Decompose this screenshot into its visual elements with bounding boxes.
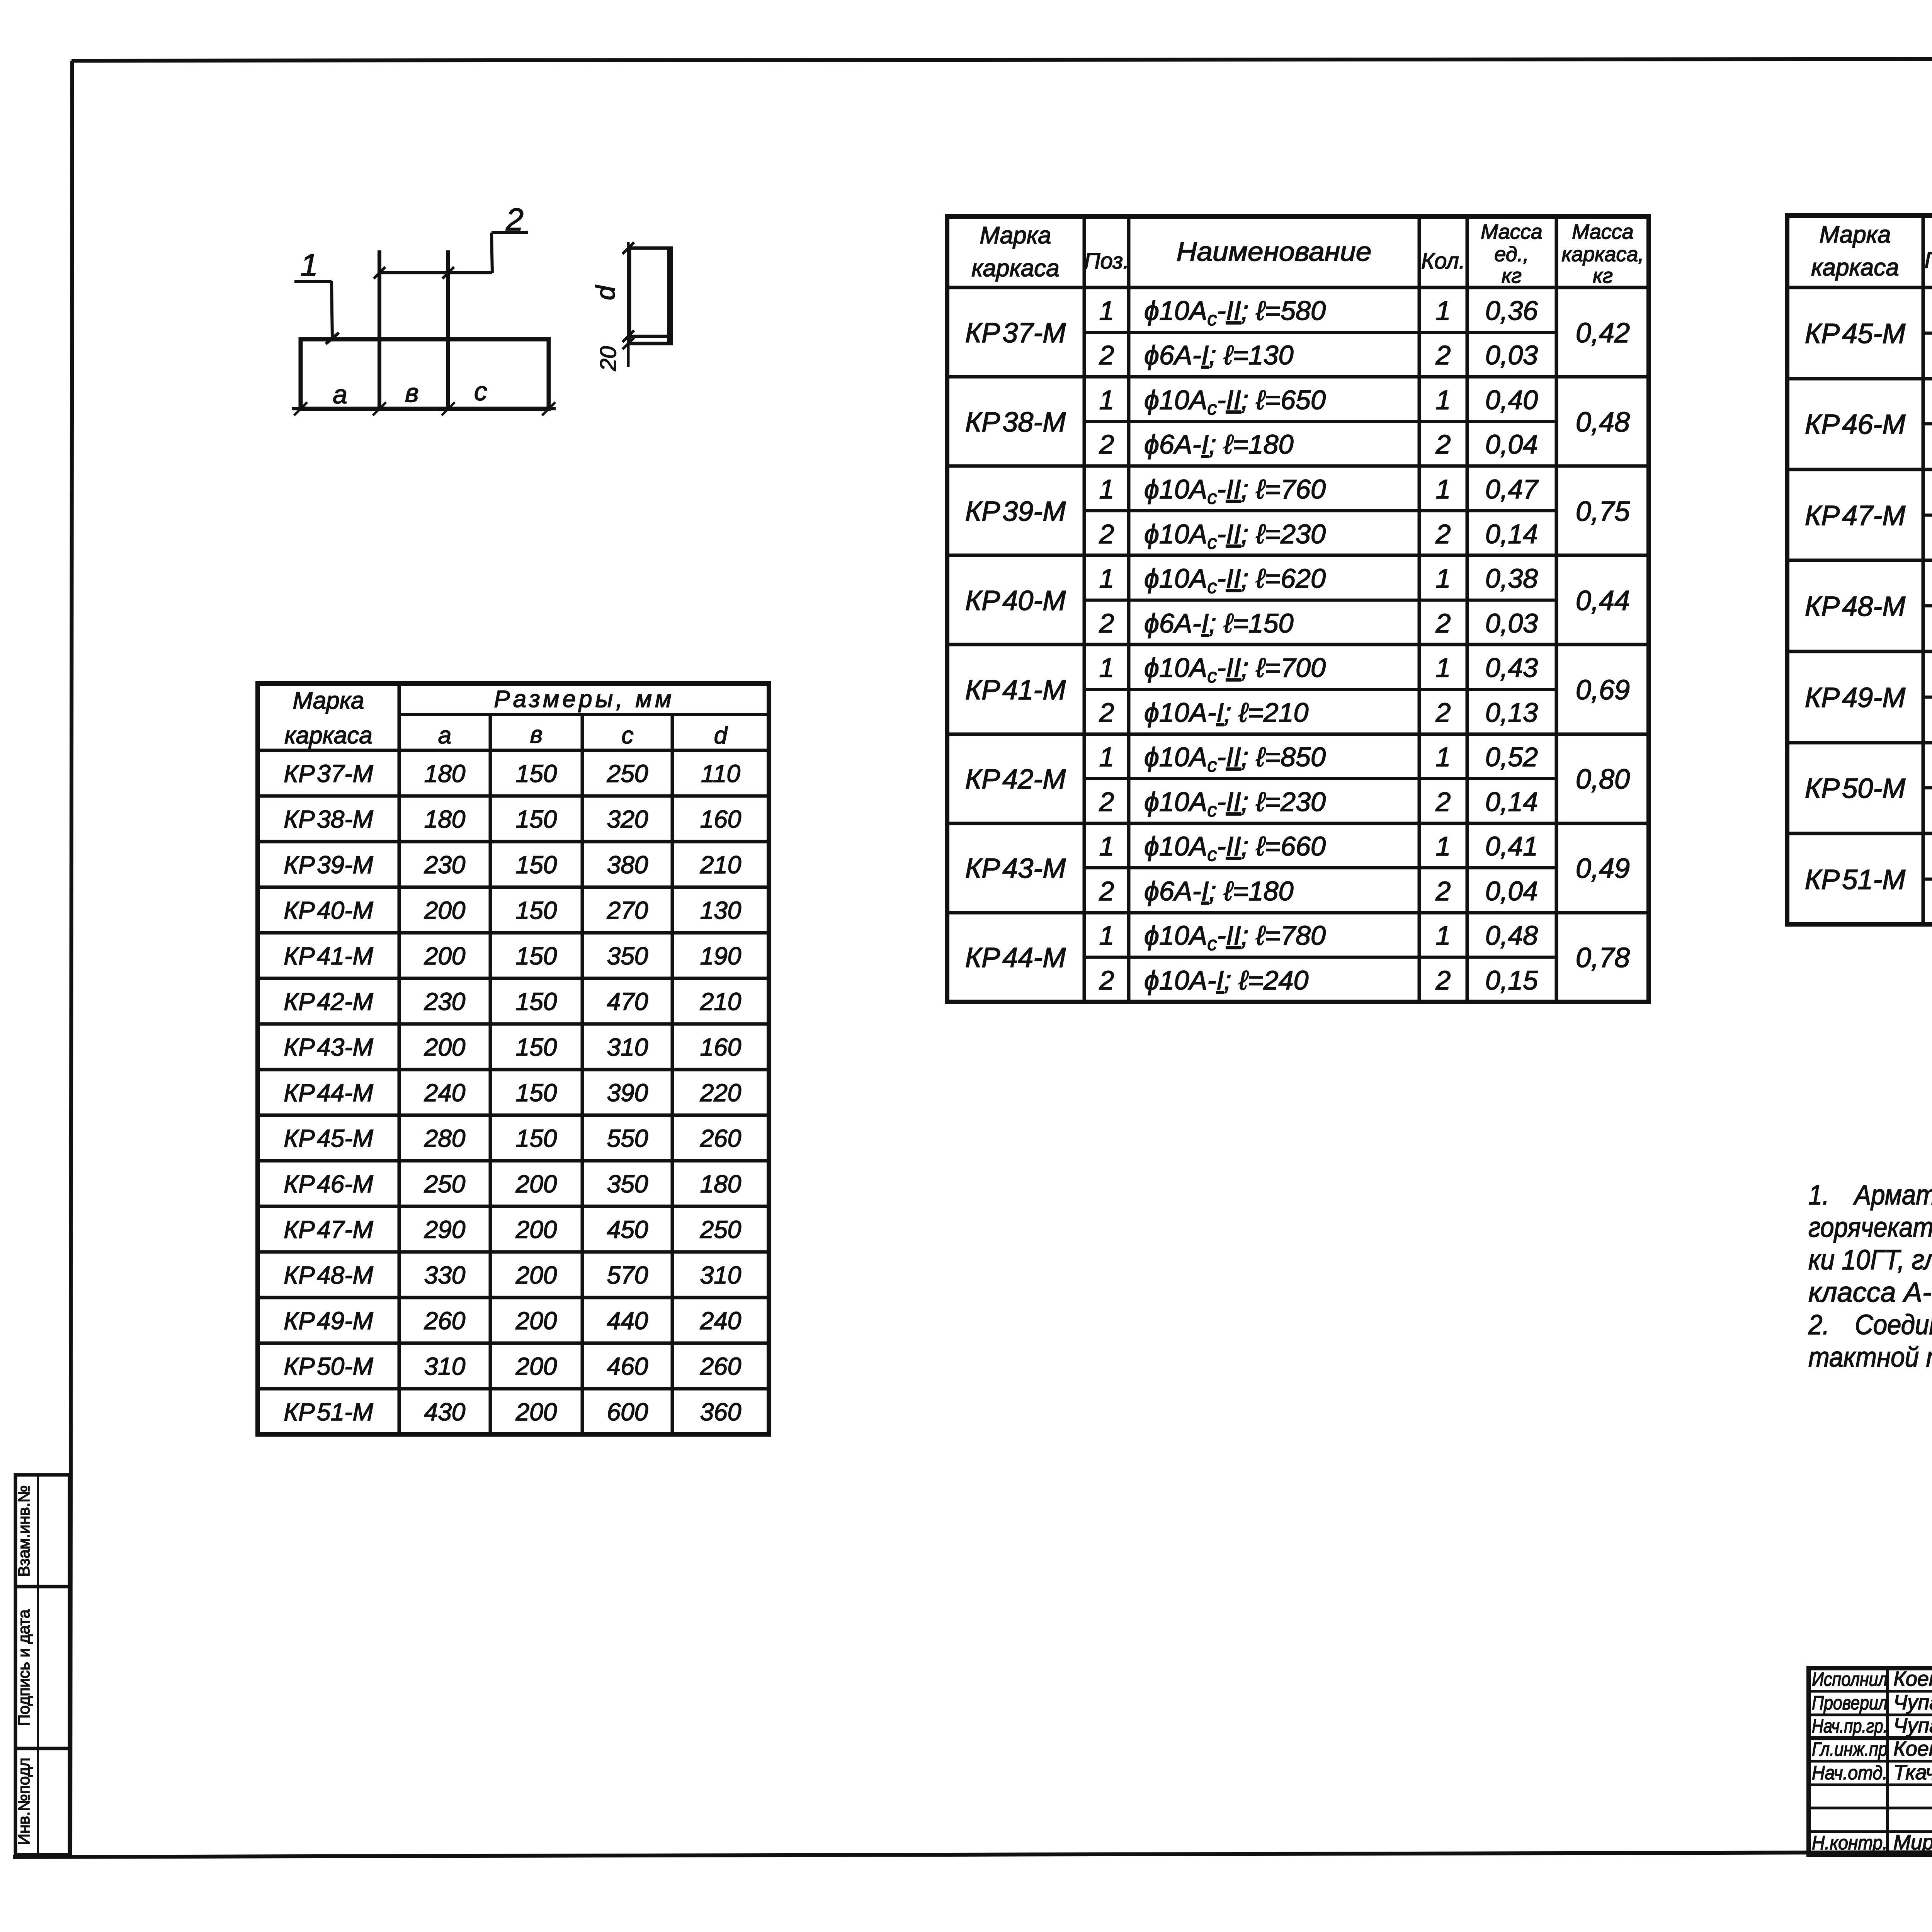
svg-text:110: 110 — [701, 760, 740, 787]
svg-text:Поз.: Поз. — [1084, 248, 1129, 274]
svg-text:310: 310 — [424, 1352, 466, 1380]
svg-text:КР 42-М: КР 42-М — [284, 988, 373, 1015]
svg-text:2: 2 — [1099, 608, 1114, 638]
svg-text:0,48: 0,48 — [1485, 920, 1538, 951]
svg-text:210: 210 — [700, 988, 742, 1015]
svg-text:0,04: 0,04 — [1485, 429, 1538, 459]
svg-text:380: 380 — [607, 851, 648, 879]
svg-text:430: 430 — [424, 1398, 466, 1426]
svg-text:1: 1 — [1099, 653, 1114, 683]
svg-text:горячекатаной низколегированн: горячекатаной низколегированной стали кл… — [1808, 1212, 1932, 1243]
svg-text:каркаса: каркаса — [284, 722, 372, 749]
svg-text:2. Соединение стержней произ: 2. Соединение стержней производится с по… — [1808, 1310, 1932, 1340]
svg-text:КР 48-М: КР 48-М — [284, 1261, 373, 1289]
svg-text:КР 51-М: КР 51-М — [284, 1398, 373, 1426]
svg-text:Марка: Марка — [1819, 221, 1891, 248]
svg-text:0,03: 0,03 — [1485, 608, 1538, 638]
svg-text:0,78: 0,78 — [1576, 942, 1630, 973]
svg-text:КР 38-М: КР 38-М — [284, 805, 373, 833]
svg-text:1: 1 — [1436, 563, 1451, 594]
svg-text:2: 2 — [1099, 340, 1114, 370]
svg-text:класса А-I марки Ст3сп.: класса А-I марки Ст3сп. — [1808, 1277, 1932, 1308]
svg-text:220: 220 — [700, 1079, 742, 1107]
svg-text:260: 260 — [700, 1352, 742, 1380]
svg-text:250: 250 — [700, 1216, 742, 1243]
svg-text:1: 1 — [1099, 296, 1114, 326]
svg-text:260: 260 — [700, 1124, 742, 1152]
svg-text:280: 280 — [424, 1124, 466, 1152]
svg-text:КР 39-М: КР 39-М — [284, 851, 373, 879]
svg-text:КР 50-М: КР 50-М — [1805, 773, 1906, 804]
svg-text:Коен Б.: Коен Б. — [1893, 1737, 1932, 1760]
svg-text:КР 39-М: КР 39-М — [965, 496, 1066, 527]
svg-text:200: 200 — [515, 1307, 557, 1335]
svg-text:330: 330 — [424, 1261, 466, 1289]
svg-text:240: 240 — [424, 1079, 466, 1107]
svg-text:460: 460 — [607, 1352, 648, 1380]
svg-text:КР 43-М: КР 43-М — [284, 1033, 373, 1061]
svg-text:200: 200 — [515, 1398, 557, 1426]
svg-text:КР 41-М: КР 41-М — [284, 942, 373, 970]
svg-text:160: 160 — [700, 805, 742, 833]
svg-text:ед.,: ед., — [1494, 243, 1529, 266]
svg-text:Н.контр.: Н.контр. — [1812, 1832, 1888, 1854]
svg-text:каркаса,: каркаса, — [1561, 243, 1644, 266]
svg-text:ϕ10Ас-II; ℓ=760: ϕ10Ас-II; ℓ=760 — [1144, 474, 1326, 508]
svg-text:КР 37-М: КР 37-М — [965, 318, 1066, 349]
svg-text:2: 2 — [1435, 697, 1451, 728]
svg-text:1: 1 — [1099, 831, 1114, 861]
svg-text:0,47: 0,47 — [1485, 474, 1539, 504]
svg-text:ϕ10Ас-II; ℓ=580: ϕ10Ас-II; ℓ=580 — [1144, 296, 1326, 330]
svg-text:150: 150 — [516, 1033, 557, 1061]
svg-text:2: 2 — [1099, 429, 1114, 459]
svg-text:0,48: 0,48 — [1576, 407, 1630, 438]
svg-text:150: 150 — [516, 942, 557, 970]
svg-text:200: 200 — [515, 1216, 557, 1243]
svg-text:200: 200 — [515, 1352, 557, 1380]
svg-text:ϕ10Ас-II; ℓ=620: ϕ10Ас-II; ℓ=620 — [1144, 563, 1326, 597]
svg-text:570: 570 — [607, 1261, 648, 1289]
svg-text:290: 290 — [424, 1216, 466, 1243]
svg-text:КР 45-М: КР 45-М — [1805, 318, 1906, 349]
svg-text:230: 230 — [424, 851, 466, 879]
svg-text:0,38: 0,38 — [1485, 563, 1538, 594]
svg-text:1: 1 — [1099, 563, 1114, 594]
svg-text:КР 45-М: КР 45-М — [284, 1124, 373, 1152]
svg-text:КР 40-М: КР 40-М — [284, 896, 373, 924]
svg-text:КР 47-М: КР 47-М — [284, 1216, 373, 1243]
svg-text:2: 2 — [1099, 697, 1114, 728]
svg-text:1: 1 — [1436, 385, 1451, 415]
svg-text:450: 450 — [607, 1216, 648, 1243]
svg-text:ϕ6А-I; ℓ=180: ϕ6А-I; ℓ=180 — [1144, 429, 1294, 459]
svg-text:d: d — [591, 285, 620, 300]
svg-text:600: 600 — [607, 1398, 648, 1426]
svg-text:250: 250 — [607, 760, 648, 787]
svg-text:440: 440 — [607, 1307, 648, 1335]
svg-text:2: 2 — [1099, 519, 1114, 549]
svg-text:Марка: Марка — [980, 222, 1051, 249]
svg-text:190: 190 — [700, 942, 742, 970]
svg-text:0,49: 0,49 — [1576, 853, 1630, 884]
svg-text:270: 270 — [607, 896, 648, 924]
svg-text:ϕ10Ас-II; ℓ=700: ϕ10Ас-II; ℓ=700 — [1144, 653, 1326, 687]
svg-text:1: 1 — [1436, 296, 1451, 326]
svg-text:КР 38-М: КР 38-М — [965, 407, 1066, 438]
svg-text:0,03: 0,03 — [1485, 340, 1538, 370]
svg-text:Нач.пр.гр.: Нач.пр.гр. — [1812, 1715, 1888, 1737]
svg-text:240: 240 — [700, 1307, 742, 1335]
svg-text:200: 200 — [424, 896, 466, 924]
svg-text:1. Арматура по ГОСТ 5781-82: 1. Арматура по ГОСТ 5781-82 периодическо… — [1808, 1180, 1932, 1211]
svg-text:0,15: 0,15 — [1485, 965, 1538, 995]
svg-text:1: 1 — [1436, 653, 1451, 683]
svg-text:в: в — [405, 378, 419, 408]
svg-text:2: 2 — [1099, 876, 1114, 906]
svg-text:кг: кг — [1502, 264, 1522, 287]
svg-text:Наименование: Наименование — [1177, 236, 1372, 267]
svg-text:0,41: 0,41 — [1485, 831, 1538, 861]
svg-text:ϕ10Ас-II; ℓ=650: ϕ10Ас-II; ℓ=650 — [1144, 385, 1326, 419]
svg-text:180: 180 — [424, 760, 466, 787]
svg-text:Марка: Марка — [293, 687, 364, 714]
svg-text:КР 49-М: КР 49-М — [1805, 682, 1906, 713]
svg-text:20: 20 — [596, 346, 621, 372]
svg-text:0,52: 0,52 — [1485, 742, 1538, 772]
svg-text:Исполнил: Исполнил — [1812, 1668, 1888, 1690]
svg-text:Поз.: Поз. — [1925, 248, 1932, 273]
svg-text:1: 1 — [1099, 920, 1114, 951]
svg-text:130: 130 — [700, 896, 742, 924]
svg-text:200: 200 — [424, 942, 466, 970]
svg-text:ϕ6А-I; ℓ=150: ϕ6А-I; ℓ=150 — [1144, 608, 1294, 638]
svg-text:250: 250 — [424, 1170, 466, 1198]
svg-text:ϕ10Ас-II; ℓ=780: ϕ10Ас-II; ℓ=780 — [1144, 920, 1326, 954]
svg-text:ϕ10Ас-II; ℓ=230: ϕ10Ас-II; ℓ=230 — [1144, 519, 1326, 553]
svg-text:550: 550 — [607, 1124, 648, 1152]
svg-text:150: 150 — [516, 805, 557, 833]
svg-text:Масса: Масса — [1572, 220, 1634, 243]
svg-text:0,13: 0,13 — [1485, 697, 1538, 728]
svg-text:Коен В.: Коен В. — [1893, 1667, 1932, 1690]
svg-text:390: 390 — [607, 1079, 648, 1107]
svg-text:2: 2 — [1099, 965, 1114, 995]
svg-text:350: 350 — [607, 1170, 648, 1198]
svg-text:360: 360 — [700, 1398, 742, 1426]
svg-text:ки 10ГТ, гладкая из углерод: ки 10ГТ, гладкая из углеродистой горячек… — [1808, 1245, 1932, 1276]
svg-text:1: 1 — [300, 248, 318, 283]
svg-text:0,14: 0,14 — [1485, 787, 1538, 817]
svg-text:1: 1 — [1436, 831, 1451, 861]
svg-text:180: 180 — [700, 1170, 742, 1198]
svg-text:470: 470 — [607, 988, 648, 1015]
svg-text:2: 2 — [1435, 429, 1451, 459]
svg-text:1: 1 — [1436, 920, 1451, 951]
svg-text:Взам.инв.№: Взам.инв.№ — [15, 1485, 33, 1577]
svg-text:1: 1 — [1099, 385, 1114, 415]
svg-text:150: 150 — [516, 988, 557, 1015]
svg-text:кг: кг — [1593, 264, 1613, 287]
svg-text:1: 1 — [1436, 474, 1451, 504]
svg-text:КР 43-М: КР 43-М — [965, 853, 1066, 884]
svg-text:0,80: 0,80 — [1576, 764, 1630, 795]
svg-text:Масса: Масса — [1481, 220, 1543, 243]
svg-text:КР 48-М: КР 48-М — [1805, 591, 1906, 622]
svg-text:0,04: 0,04 — [1485, 876, 1538, 906]
svg-text:КР 50-М: КР 50-М — [284, 1352, 373, 1380]
svg-text:Миронова: Миронова — [1893, 1831, 1932, 1854]
svg-text:c: c — [474, 377, 487, 406]
svg-text:КР 44-М: КР 44-М — [965, 942, 1066, 973]
svg-text:Чупарнова: Чупарнова — [1893, 1714, 1932, 1737]
svg-text:200: 200 — [515, 1261, 557, 1289]
svg-text:2: 2 — [1435, 787, 1451, 817]
svg-text:КР 41-М: КР 41-М — [965, 675, 1066, 706]
svg-text:2: 2 — [1435, 608, 1451, 638]
svg-text:2: 2 — [1435, 340, 1451, 370]
svg-text:a: a — [333, 380, 347, 409]
svg-text:1: 1 — [1099, 742, 1114, 772]
svg-text:КР 37-М: КР 37-М — [284, 760, 373, 787]
svg-text:230: 230 — [424, 988, 466, 1015]
svg-text:1: 1 — [1099, 474, 1114, 504]
svg-text:0,69: 0,69 — [1576, 675, 1630, 706]
svg-text:160: 160 — [700, 1033, 742, 1061]
svg-text:d: d — [714, 722, 728, 749]
svg-text:Гл.инж.пр: Гл.инж.пр — [1812, 1738, 1888, 1760]
svg-text:0,43: 0,43 — [1485, 653, 1538, 683]
svg-text:310: 310 — [700, 1261, 742, 1289]
svg-text:2: 2 — [1435, 876, 1451, 906]
svg-text:ϕ10Ас-II; ℓ=850: ϕ10Ас-II; ℓ=850 — [1144, 742, 1326, 776]
svg-text:ϕ6А-I; ℓ=180: ϕ6А-I; ℓ=180 — [1144, 876, 1294, 906]
svg-text:Нач.отд.: Нач.отд. — [1812, 1762, 1888, 1784]
svg-text:0,40: 0,40 — [1485, 385, 1538, 415]
svg-text:150: 150 — [516, 1124, 557, 1152]
svg-text:Кол.: Кол. — [1421, 248, 1465, 274]
svg-text:КР 44-М: КР 44-М — [284, 1079, 373, 1107]
svg-text:2: 2 — [1435, 965, 1451, 995]
svg-text:200: 200 — [515, 1170, 557, 1198]
svg-text:КР 49-М: КР 49-М — [284, 1307, 373, 1335]
svg-text:350: 350 — [607, 942, 648, 970]
svg-text:Ткаченко: Ткаченко — [1893, 1761, 1932, 1784]
svg-text:тактной точечной сварки по: тактной точечной сварки по ГОСТ 14098-91… — [1808, 1342, 1932, 1373]
svg-text:КР 51-М: КР 51-М — [1805, 864, 1906, 895]
svg-text:каркаса: каркаса — [1811, 254, 1899, 281]
svg-text:ϕ10Ас-II; ℓ=660: ϕ10Ас-II; ℓ=660 — [1144, 831, 1326, 865]
svg-text:2: 2 — [1099, 787, 1114, 817]
svg-text:каркаса: каркаса — [971, 255, 1059, 282]
svg-text:Чупарнова: Чупарнова — [1893, 1691, 1932, 1714]
svg-text:2: 2 — [1435, 519, 1451, 549]
svg-text:КР 46-М: КР 46-М — [284, 1170, 373, 1198]
svg-text:0,75: 0,75 — [1576, 496, 1630, 527]
svg-text:ϕ6А-I; ℓ=130: ϕ6А-I; ℓ=130 — [1144, 340, 1294, 370]
svg-text:0,44: 0,44 — [1576, 585, 1630, 616]
svg-text:150: 150 — [516, 896, 557, 924]
svg-text:200: 200 — [424, 1033, 466, 1061]
svg-text:Размеры, мм: Размеры, мм — [494, 686, 674, 713]
svg-text:Инв.№подл: Инв.№подл — [15, 1758, 33, 1845]
svg-text:Подпись и дата: Подпись и дата — [15, 1609, 33, 1726]
svg-text:ϕ10А-I; ℓ=210: ϕ10А-I; ℓ=210 — [1144, 697, 1309, 728]
svg-text:320: 320 — [607, 805, 648, 833]
svg-text:260: 260 — [424, 1307, 466, 1335]
svg-text:КР 42-М: КР 42-М — [965, 764, 1066, 795]
svg-text:c: c — [622, 722, 634, 749]
svg-text:0,36: 0,36 — [1485, 296, 1538, 326]
svg-text:ϕ10А-I; ℓ=240: ϕ10А-I; ℓ=240 — [1144, 965, 1309, 995]
svg-text:150: 150 — [516, 851, 557, 879]
svg-text:КР 47-М: КР 47-М — [1805, 500, 1906, 531]
svg-text:КР 40-М: КР 40-М — [965, 585, 1066, 616]
svg-text:210: 210 — [700, 851, 742, 879]
svg-text:Проверил: Проверил — [1812, 1692, 1888, 1714]
svg-text:КР 46-М: КР 46-М — [1805, 409, 1906, 440]
svg-text:150: 150 — [516, 760, 557, 787]
svg-text:1: 1 — [1436, 742, 1451, 772]
svg-text:ϕ10Ас-II; ℓ=230: ϕ10Ас-II; ℓ=230 — [1144, 787, 1326, 821]
svg-text:310: 310 — [607, 1033, 648, 1061]
svg-text:0,14: 0,14 — [1485, 519, 1538, 549]
svg-text:в: в — [530, 721, 543, 748]
svg-text:180: 180 — [424, 805, 466, 833]
svg-text:0,42: 0,42 — [1576, 318, 1630, 349]
svg-text:150: 150 — [516, 1079, 557, 1107]
svg-text:a: a — [438, 722, 451, 749]
